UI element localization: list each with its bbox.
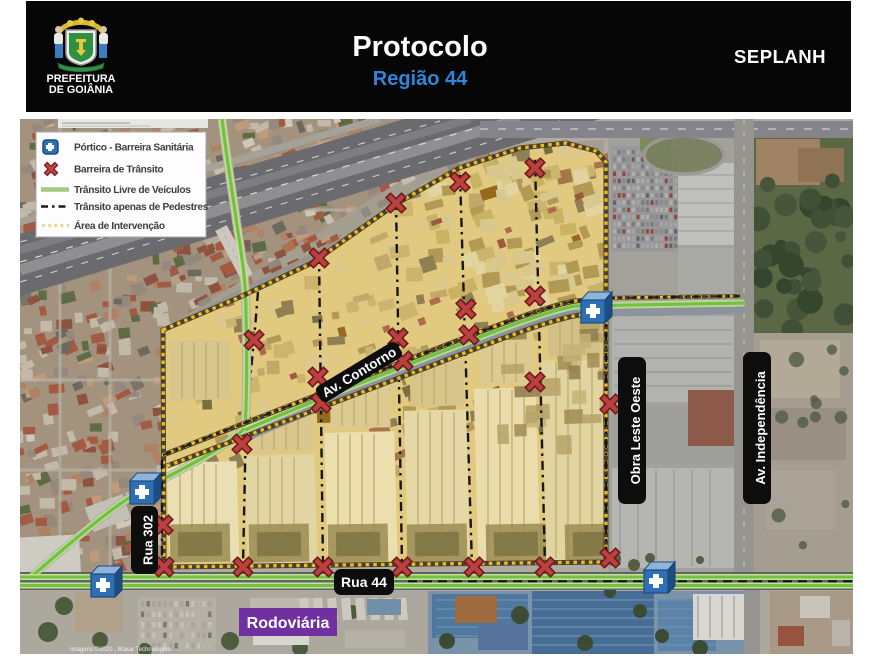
svg-text:Obra Leste Oeste: Obra Leste Oeste xyxy=(628,377,643,485)
svg-text:Rua 302: Rua 302 xyxy=(140,515,155,565)
svg-text:Rua 44: Rua 44 xyxy=(341,574,387,590)
svg-text:Trânsito Livre de Veículos: Trânsito Livre de Veículos xyxy=(74,185,191,196)
svg-text:Av. Independência: Av. Independência xyxy=(753,371,768,485)
svg-text:Imagens ©2020 , Maxar Technolo: Imagens ©2020 , Maxar Technologies xyxy=(70,646,171,653)
svg-text:Trânsito apenas de Pedestres: Trânsito apenas de Pedestres xyxy=(74,202,209,213)
svg-text:Pórtico - Barreira Sanitária: Pórtico - Barreira Sanitária xyxy=(74,143,194,154)
svg-text:Rodoviária: Rodoviária xyxy=(247,615,330,632)
svg-text:Área de Intervenção: Área de Intervenção xyxy=(74,219,165,232)
svg-text:Barreira de Trânsito: Barreira de Trânsito xyxy=(74,165,163,176)
